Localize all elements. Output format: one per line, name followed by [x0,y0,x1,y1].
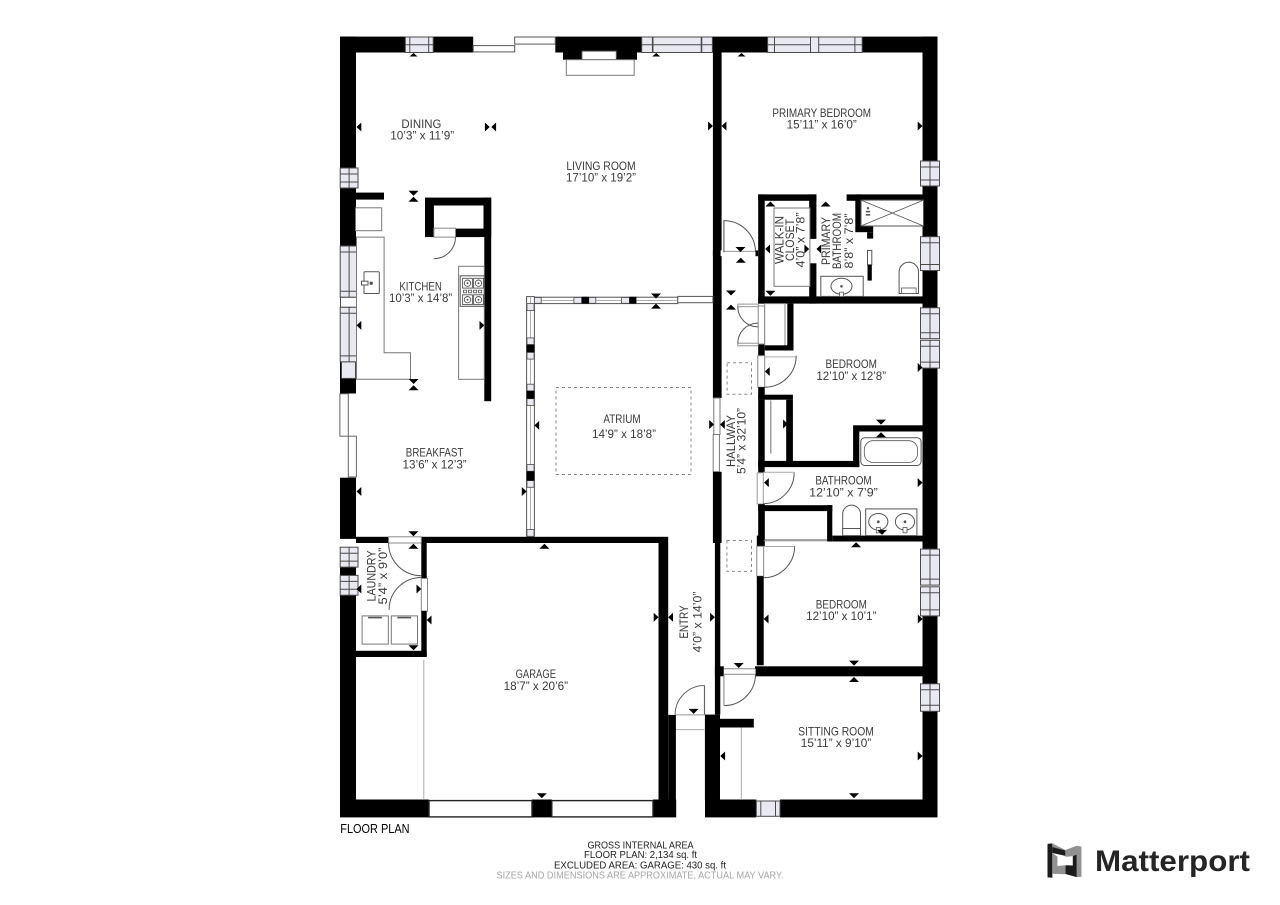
svg-text:12’10” x 12’8”: 12’10” x 12’8” [816,369,886,383]
svg-text:12’10” x 7’9”: 12’10” x 7’9” [809,485,878,499]
svg-text:15’11” x 9’10”: 15’11” x 9’10” [801,736,871,750]
svg-text:17’10” x 19’2”: 17’10” x 19’2” [566,171,636,185]
svg-text:4’0” x 7’8”: 4’0” x 7’8” [794,212,808,267]
svg-text:8’8” x 7’8”: 8’8” x 7’8” [842,213,856,268]
svg-text:18’7” x 20’6”: 18’7” x 20’6” [504,679,568,693]
svg-text:ENTRY: ENTRY [677,606,691,639]
svg-text:4’0” x 14’0”: 4’0” x 14’0” [690,592,704,653]
svg-text:10’3” x 11’9”: 10’3” x 11’9” [390,129,454,143]
svg-text:FLOOR PLAN: 2,134 sq. ft: FLOOR PLAN: 2,134 sq. ft [584,850,697,861]
svg-text:ATRIUM: ATRIUM [603,412,640,426]
svg-text:Matterport: Matterport [1095,845,1250,878]
svg-text:14’9” x 18’8”: 14’9” x 18’8” [592,427,656,441]
svg-text:5’4” x 9’0”: 5’4” x 9’0” [376,547,390,604]
svg-text:5’4” x 32’10”: 5’4” x 32’10” [735,408,749,474]
svg-text:FLOOR PLAN: FLOOR PLAN [340,822,409,836]
svg-text:12’10” x 10’1”: 12’10” x 10’1” [806,609,876,623]
svg-text:15’11” x 16’0”: 15’11” x 16’0” [787,118,857,132]
svg-text:10’3” x 14’8”: 10’3” x 14’8” [389,291,452,305]
svg-text:SIZES AND DIMENSIONS ARE APPRO: SIZES AND DIMENSIONS ARE APPROXIMATE, AC… [497,871,784,882]
svg-text:13’6” x 12’3”: 13’6” x 12’3” [403,457,467,471]
